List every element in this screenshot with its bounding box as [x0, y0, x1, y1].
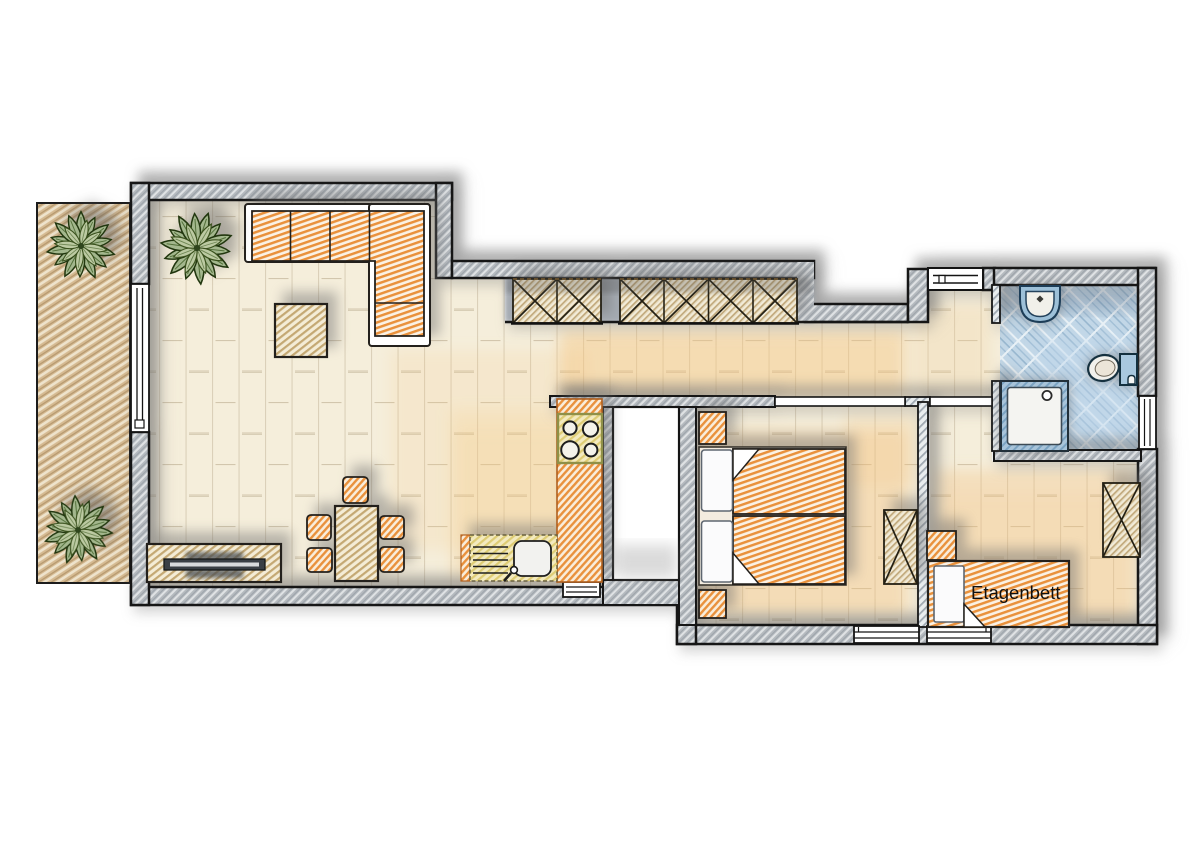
svg-text:Etagenbett: Etagenbett — [971, 582, 1061, 603]
